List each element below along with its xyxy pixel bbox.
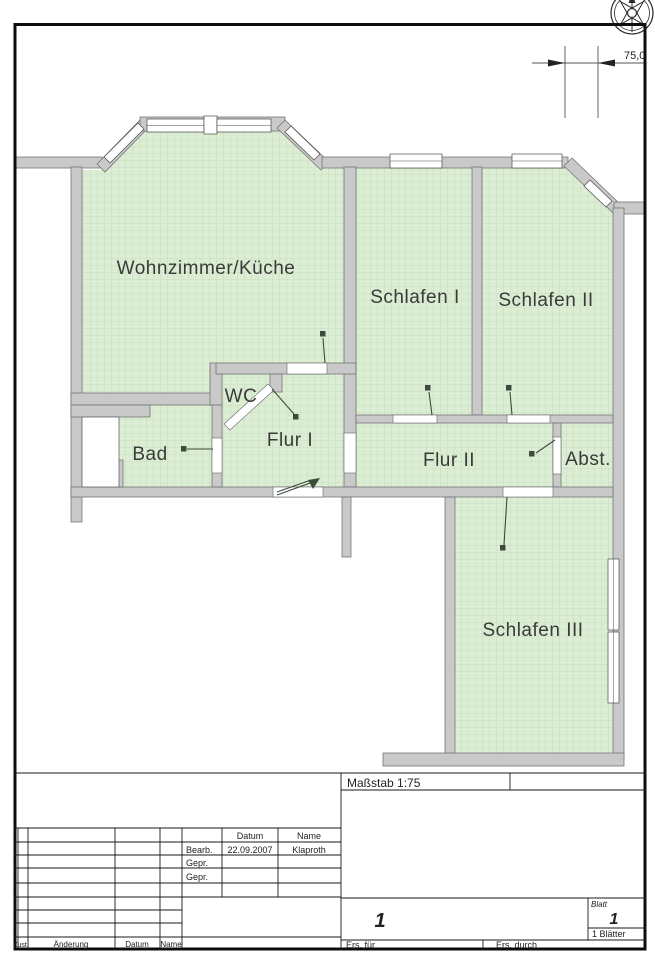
label-flur-2: Flur II: [423, 450, 475, 471]
door-opening-schlafen1: [393, 415, 437, 423]
door-opening-schlafen2: [507, 415, 550, 423]
dimension-arrow-right-icon: [598, 60, 615, 67]
ers-fuer-label: Ers. für: [346, 940, 375, 950]
door-opening-abst: [553, 437, 561, 474]
blatt-value: 1: [610, 911, 619, 928]
rev-header-name: Name: [160, 940, 182, 949]
wall-schlafen1-schlafen2: [472, 167, 482, 415]
rev-header-datum: Datum: [125, 940, 149, 949]
label-flur-1: Flur I: [267, 430, 313, 451]
label-abst: Abst.: [565, 449, 611, 470]
door-knob-abst: [529, 451, 535, 457]
row-bearb-label: Bearb.: [186, 845, 213, 855]
compass-rose-icon: [609, 0, 654, 36]
wall-schlafen3-left: [445, 497, 455, 753]
wall-wohnzimmer-bottom-right: [216, 363, 356, 374]
door-knob-schlafen2: [506, 385, 512, 391]
row-bearb-name: Klaproth: [292, 845, 326, 855]
label-bad: Bad: [132, 444, 167, 465]
wall-stub-below-entrance: [342, 497, 351, 557]
label-schlafen-1: Schlafen I: [370, 287, 460, 308]
floor-plan-svg: Wohnzimmer/Küche Schlafen I Schlafen II …: [0, 0, 655, 960]
rev-header-zust: Zust.: [13, 942, 29, 949]
door-knob-bad: [181, 446, 187, 452]
door-opening-schlafen3: [503, 487, 553, 497]
title-block-grid: [14, 773, 646, 950]
wall-wohnzimmer-bottom-left: [71, 393, 216, 405]
wall-bad-step: [71, 405, 150, 417]
dimension-value: 75,0: [624, 50, 645, 62]
door-knob-schlafen3: [500, 545, 506, 551]
door-opening-entrance: [273, 487, 323, 497]
wall-left: [71, 167, 82, 522]
label-wohnzimmer-kueche: Wohnzimmer/Küche: [117, 258, 296, 279]
row-gepr2-label: Gepr.: [186, 872, 208, 882]
row-gepr1-label: Gepr.: [186, 858, 208, 868]
label-schlafen-2: Schlafen II: [498, 290, 593, 311]
drawing-sheet: Wohnzimmer/Küche Schlafen I Schlafen II …: [0, 0, 655, 960]
blaetter-label: 1 Blätter: [592, 929, 626, 939]
label-schlafen-3: Schlafen III: [482, 620, 583, 641]
row-bearb-datum: 22.09.2007: [227, 845, 272, 855]
ers-durch-label: Ers. durch: [496, 940, 537, 950]
bathtub: [82, 417, 119, 487]
col-header-datum: Datum: [237, 831, 264, 841]
door-opening-flur1-flur2: [344, 433, 356, 473]
dimension-arrow-left-icon: [548, 60, 565, 67]
door-knob-wohnzimmer: [320, 331, 326, 337]
door-knob-wc: [293, 414, 299, 420]
window-bay-mullion-icon: [204, 116, 217, 134]
door-opening-bad: [212, 438, 222, 473]
rev-header-aenderung: Änderung: [54, 940, 89, 949]
blatt-label: Blatt: [591, 900, 608, 909]
door-opening-wohnzimmer: [287, 363, 327, 374]
wall-top-left: [14, 157, 102, 168]
door-knob-schlafen1: [425, 385, 431, 391]
title-block: Maßstab 1:75 Datum Name Bearb. 22.09.200…: [13, 773, 646, 950]
sheet-number-center: 1: [374, 910, 385, 932]
label-wc: WC: [225, 386, 258, 407]
dimension-line: 75,0: [532, 46, 646, 118]
col-header-name: Name: [297, 831, 321, 841]
massstab-label: Maßstab 1:75: [347, 776, 421, 790]
wall-bottom-schlafen3: [383, 753, 624, 766]
